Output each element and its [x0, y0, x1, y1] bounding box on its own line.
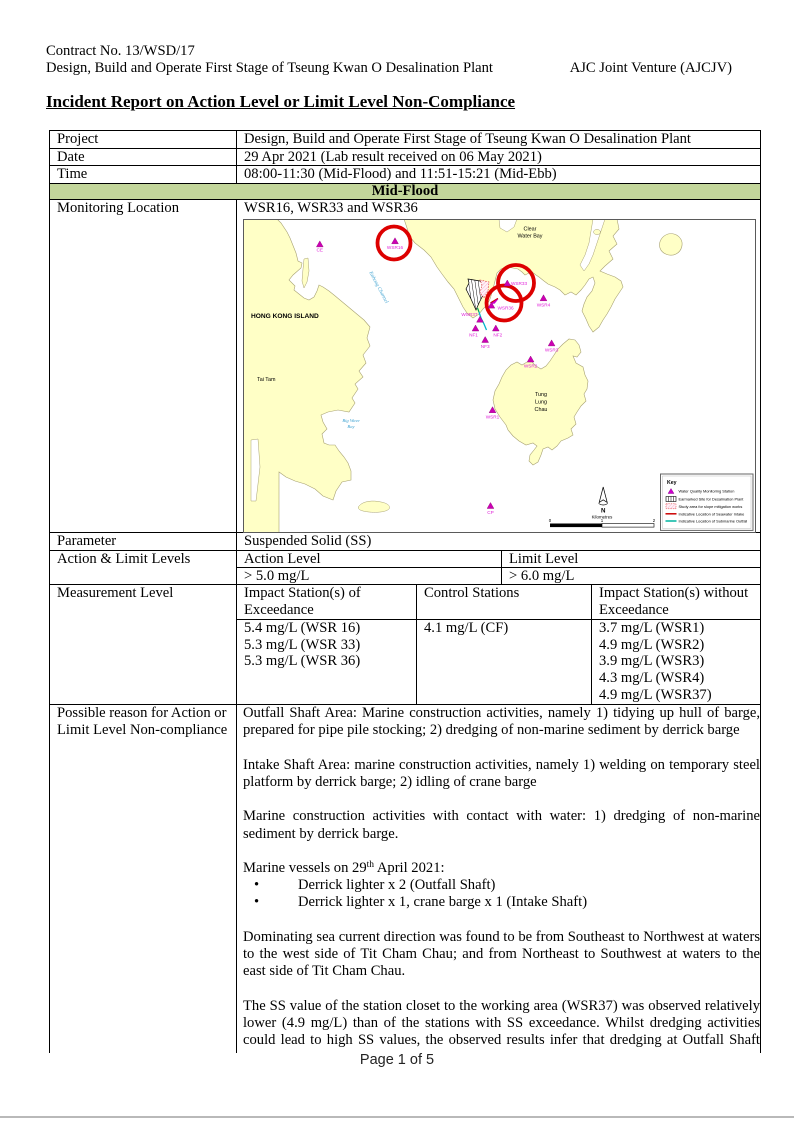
svg-text:CE: CE — [317, 248, 324, 253]
svg-text:NF3: NF3 — [481, 344, 490, 349]
svg-text:WSR4: WSR4 — [537, 303, 551, 308]
svg-text:Big Wave: Big Wave — [342, 418, 359, 423]
svg-text:NF1: NF1 — [469, 333, 478, 338]
svg-text:Water Bay: Water Bay — [518, 234, 543, 240]
svg-text:CP: CP — [487, 510, 494, 515]
svg-text:WSR37: WSR37 — [461, 312, 478, 317]
svg-text:WSR36: WSR36 — [498, 305, 515, 310]
svg-text:Tung: Tung — [535, 392, 547, 398]
svg-text:WSR1: WSR1 — [486, 415, 500, 420]
svg-text:Indicative Location of Seawate: Indicative Location of Seawater Intake — [679, 511, 745, 516]
svg-text:WSR3: WSR3 — [545, 348, 559, 353]
svg-text:HONG KONG ISLAND: HONG KONG ISLAND — [251, 313, 319, 320]
svg-text:Indicative Location of Submari: Indicative Location of Submarine Outfall — [679, 519, 748, 524]
svg-text:Tai Tam: Tai Tam — [257, 377, 276, 383]
svg-text:Lung: Lung — [535, 400, 547, 406]
svg-text:Earmarked Site for Desalinatio: Earmarked Site for Desalination Plant — [679, 497, 745, 502]
svg-text:WSR16: WSR16 — [387, 245, 404, 250]
svg-text:Chau: Chau — [535, 407, 548, 413]
svg-text:Study area for slope mitigatio: Study area for slope mitigation works — [679, 504, 743, 509]
svg-text:Water Quality Monitoring Stati: Water Quality Monitoring Station — [679, 489, 735, 494]
svg-text:WSR33: WSR33 — [511, 281, 528, 286]
svg-text:Key: Key — [667, 480, 677, 486]
svg-text:WSR2: WSR2 — [524, 364, 538, 369]
svg-text:Bay: Bay — [347, 424, 355, 429]
svg-text:NF2: NF2 — [493, 333, 502, 338]
svg-text:N: N — [601, 508, 606, 515]
svg-text:Clear: Clear — [524, 227, 537, 233]
